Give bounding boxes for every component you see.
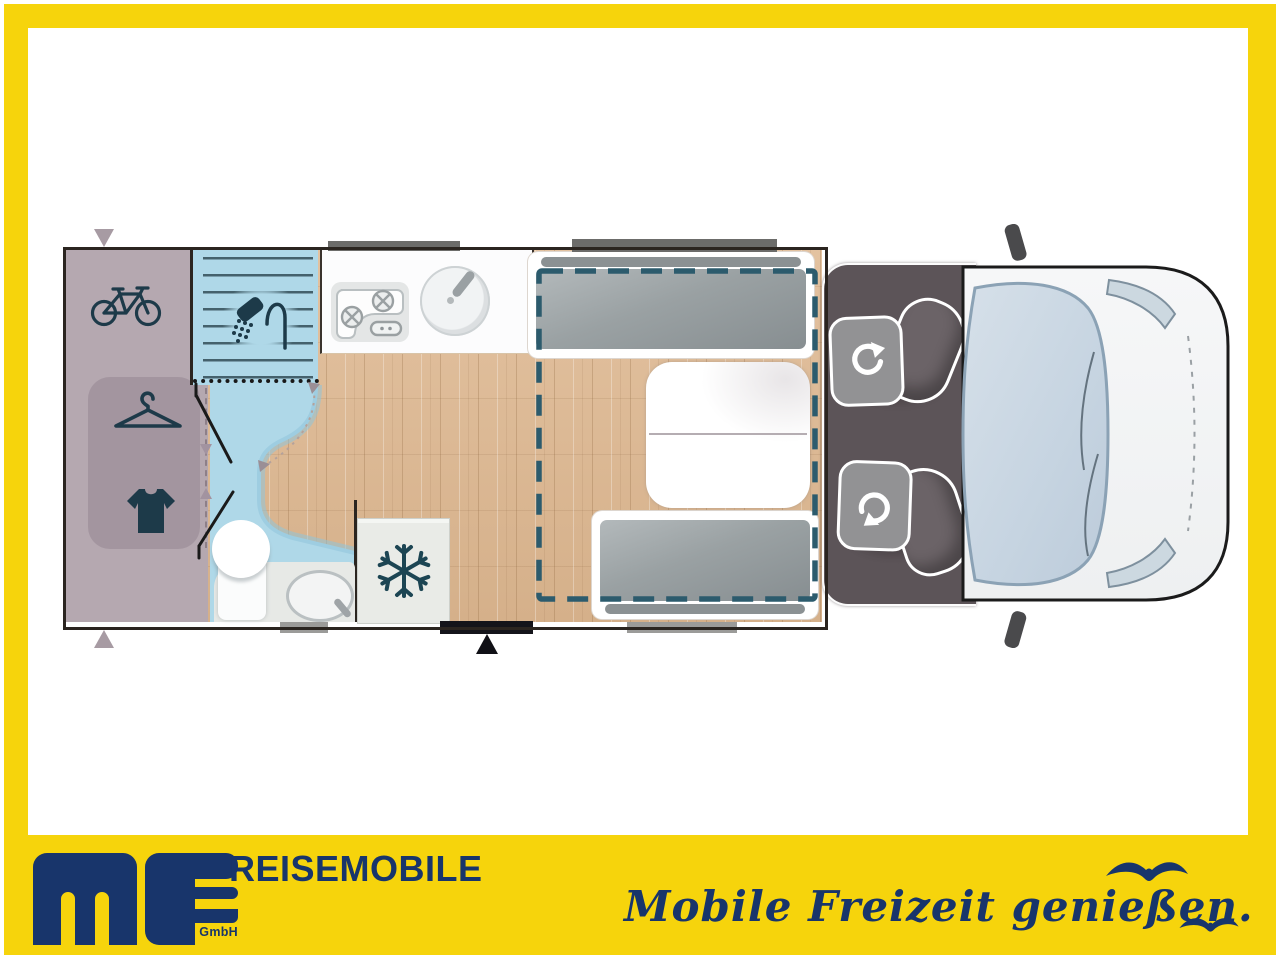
step-marker bbox=[627, 622, 737, 633]
garage-door-arrow-bottom bbox=[94, 630, 114, 648]
stove-icon bbox=[331, 282, 409, 342]
motorhome-floorplan-advert: GmbH REISEMOBILE Mobile Freizeit genieße… bbox=[0, 0, 1280, 959]
frame-left bbox=[4, 4, 28, 955]
drain bbox=[447, 297, 454, 304]
step-marker bbox=[280, 622, 328, 633]
bicycle-icon bbox=[90, 280, 162, 328]
refrigerator bbox=[357, 518, 450, 624]
roof-marker bbox=[572, 239, 777, 252]
wall bbox=[190, 250, 193, 385]
brand-wordmark: REISEMOBILE bbox=[229, 850, 483, 888]
frame-right bbox=[1248, 4, 1276, 955]
entry-door bbox=[440, 621, 533, 634]
wardrobe bbox=[88, 377, 200, 549]
rotate-arrow-icon bbox=[848, 479, 902, 533]
van-front bbox=[956, 224, 1232, 648]
seat-cushion bbox=[836, 459, 913, 552]
entry-door-arrow bbox=[476, 634, 498, 654]
kitchen-sink bbox=[420, 266, 490, 336]
toilet bbox=[212, 520, 270, 578]
shirt-icon bbox=[127, 488, 175, 534]
seagull-icon-large bbox=[1104, 852, 1190, 886]
hanger-icon bbox=[112, 390, 184, 432]
bench-headrest bbox=[605, 604, 805, 614]
swivel-seat-driver bbox=[822, 288, 966, 427]
ms-logo-gmbh: GmbH bbox=[190, 925, 238, 939]
drop-down-bed-outline bbox=[534, 266, 820, 604]
ms-logo-m bbox=[33, 853, 137, 945]
garage-door-arrow-top bbox=[94, 229, 114, 247]
shower-door-swing-arc bbox=[248, 378, 332, 478]
roof-marker bbox=[328, 241, 460, 251]
shower-icon bbox=[229, 288, 291, 354]
swivel-seat-passenger bbox=[830, 443, 970, 578]
seat-cushion bbox=[828, 315, 905, 408]
rear-garage bbox=[66, 250, 208, 622]
rotate-arrow-icon bbox=[846, 340, 887, 381]
snowflake-icon bbox=[375, 542, 433, 600]
brand-slogan: Mobile Freizeit genießen. bbox=[624, 884, 1254, 930]
seagull-icon-small bbox=[1178, 910, 1240, 936]
frame-top bbox=[4, 4, 1276, 28]
